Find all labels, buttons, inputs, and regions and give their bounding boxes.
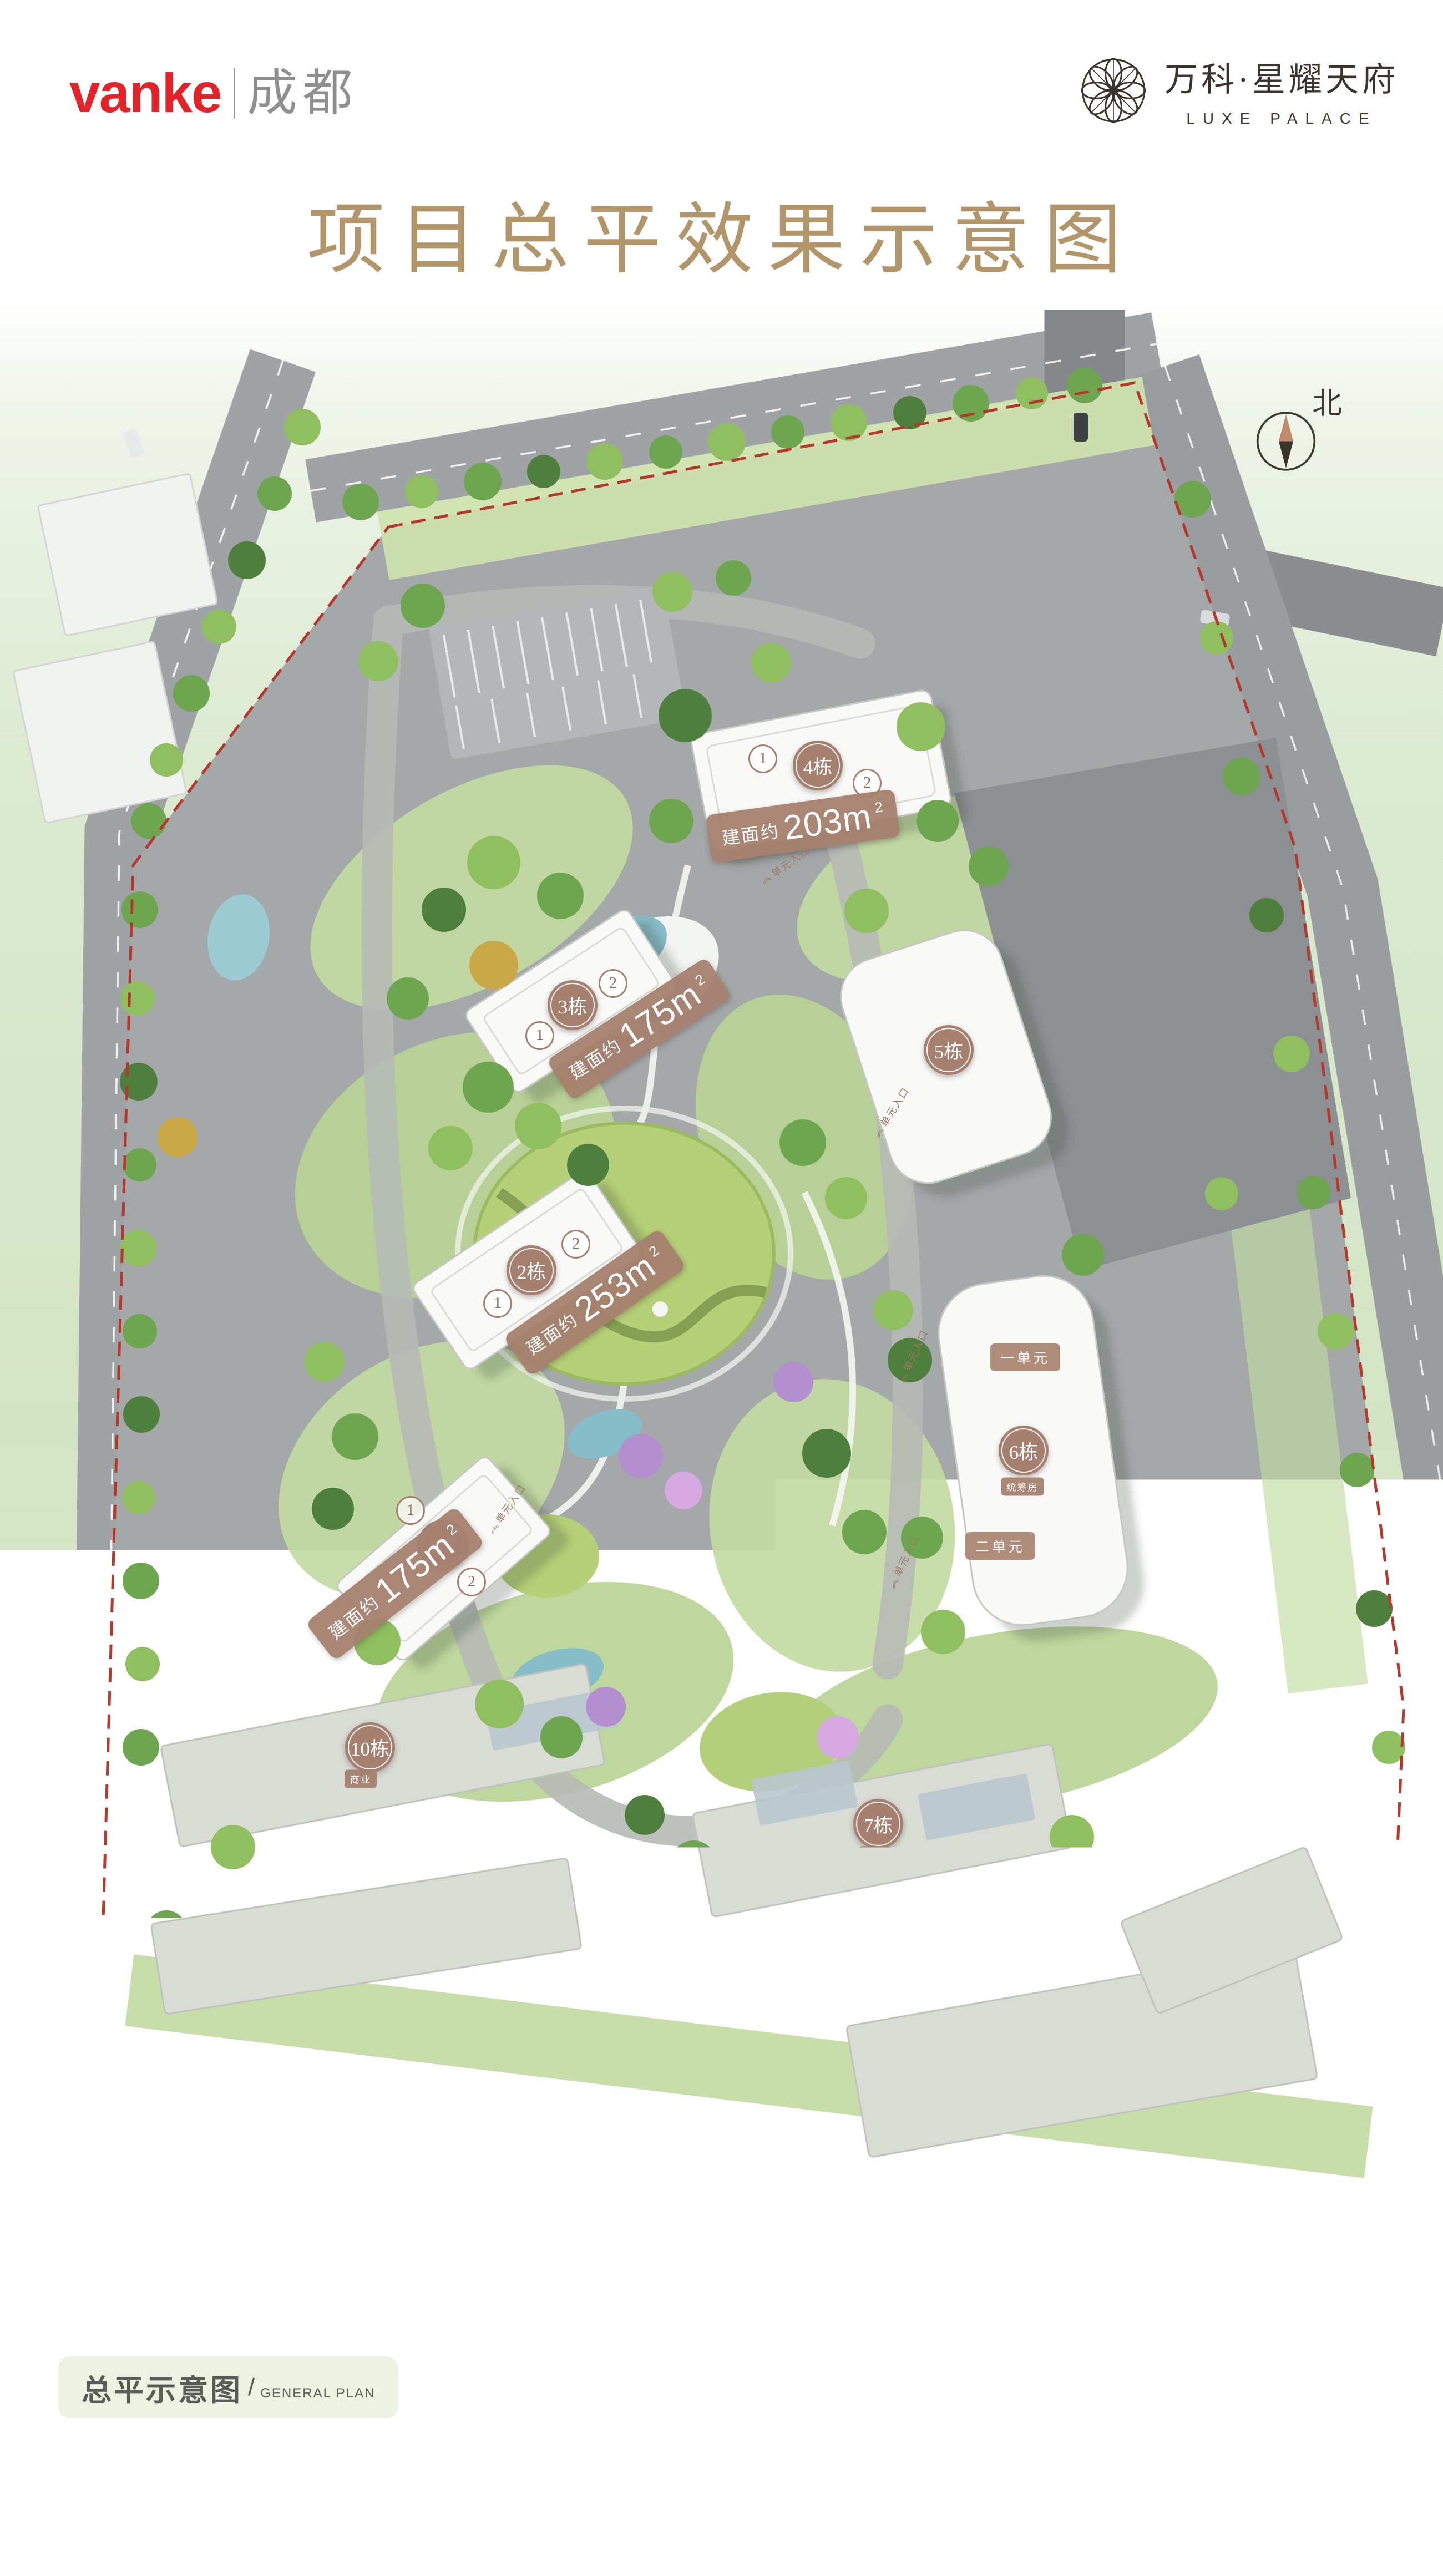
caption-general-plan: 总平示意图 / GENERAL PLAN [58, 2356, 398, 2418]
unit-circle-2-2: 2 [561, 1230, 590, 1259]
tag-commercial-9: 商业 [353, 1949, 385, 1968]
poster-page: vanke 成都 万科·星耀天府 LUXE PALACE [0, 0, 1443, 2576]
area-value: 203m [781, 797, 874, 848]
disclaimer-line: *楼栋分布说明：1栋地上总层数为23F，2栋地上总层数为22F，3栋、4栋、5栋… [54, 2512, 1397, 2528]
building-badge-5: 5栋 [924, 1025, 974, 1075]
compass-icon [1255, 410, 1317, 473]
area-prefix: 建面约 [720, 817, 781, 850]
building-badge-label: 9栋 [355, 1913, 384, 1941]
caption-separator: / [248, 2374, 255, 2401]
building-badge-4: 4栋 [793, 741, 843, 790]
disclaimer-line: *特殊房源说明：2栋、4栋顶层房屋为非标跃层户型，2栋21层跃层户型建面约365… [54, 2478, 1397, 2495]
tag-commercial-8: 商业 [1043, 2090, 1075, 2108]
building-badge-8: 8栋 [1041, 2034, 1091, 2084]
building-badge-label: 5栋 [934, 1036, 964, 1064]
unit-pill-6-2: 二单元 [965, 1532, 1035, 1560]
disclaimer-line: 20F，7栋、8栋、9栋、10栋（商业）地上总层数为2F。其中4、5、6栋负一层… [54, 2528, 1397, 2545]
building-badge-label: 6栋 [1009, 1437, 1039, 1465]
caption-zh: 总平示意图 [82, 2366, 242, 2410]
disclaimer-block: 本图为万科·星耀天府（备案名：万科星耀阁）总平规划效果示意图，内容仅为要约邀请，… [54, 2445, 1397, 2562]
area-sup: 2 [873, 798, 884, 817]
caption-en: GENERAL PLAN [260, 2386, 375, 2401]
building-badge-3: 3栋 [548, 980, 598, 1030]
unit-circle-3-1: 1 [525, 1021, 554, 1050]
building-badge-label: 10栋 [351, 1733, 389, 1762]
tag-commercial-10: 商业 [345, 1770, 377, 1788]
tag-commercial-7: 商业 [859, 1847, 891, 1865]
building-badge-label: 7栋 [864, 1810, 893, 1838]
tag-tongchoufang-6: 统筹房 [1001, 1478, 1044, 1496]
north-label: 北 [1312, 379, 1342, 423]
unit-circle-3-2: 2 [599, 969, 627, 998]
unit-circle-2-1: 1 [483, 1289, 512, 1318]
site-plan-art [0, 0, 1443, 2576]
building-badge-10: 10栋 [345, 1722, 395, 1772]
building-badge-6: 6栋 [999, 1426, 1049, 1475]
disclaimer-line: 定视线遮挡，具体以实际交付为准。3栋3-1-201、3-1-301、3-1-40… [54, 2495, 1397, 2512]
disclaimer-line: 与实景存在差异，细节以规划方案为准；在建设过程中可能因政府或其他有权单位要求而修… [54, 2462, 1397, 2478]
unit-circle-1-1: 1 [396, 1496, 425, 1525]
footer-divider [54, 2436, 1390, 2438]
building-badge-label: 3栋 [558, 991, 588, 1020]
building-badge-label: 2栋 [517, 1256, 546, 1285]
building-badge-9: 9栋 [344, 1901, 394, 1951]
disclaimer-line: 开发商：成都鼎骏置业有限公司；代理公司：珠海蓉万唯家房地产经纪有限公司/成都方圆… [54, 2545, 1397, 2562]
unit-pill-6-1: 一单元 [990, 1343, 1060, 1371]
unit-circle-4-1: 1 [748, 744, 777, 773]
unit-circle-1-2: 2 [457, 1568, 486, 1596]
disclaimer-line: 本图为万科·星耀天府（备案名：万科星耀阁）总平规划效果示意图，内容仅为要约邀请，… [54, 2445, 1397, 2462]
building-badge-label: 4栋 [803, 752, 833, 780]
building-badge-label: 8栋 [1051, 2045, 1081, 2073]
building-badge-2: 2栋 [507, 1245, 556, 1295]
building-badge-7: 7栋 [853, 1799, 903, 1849]
north-indicator [1255, 410, 1317, 475]
